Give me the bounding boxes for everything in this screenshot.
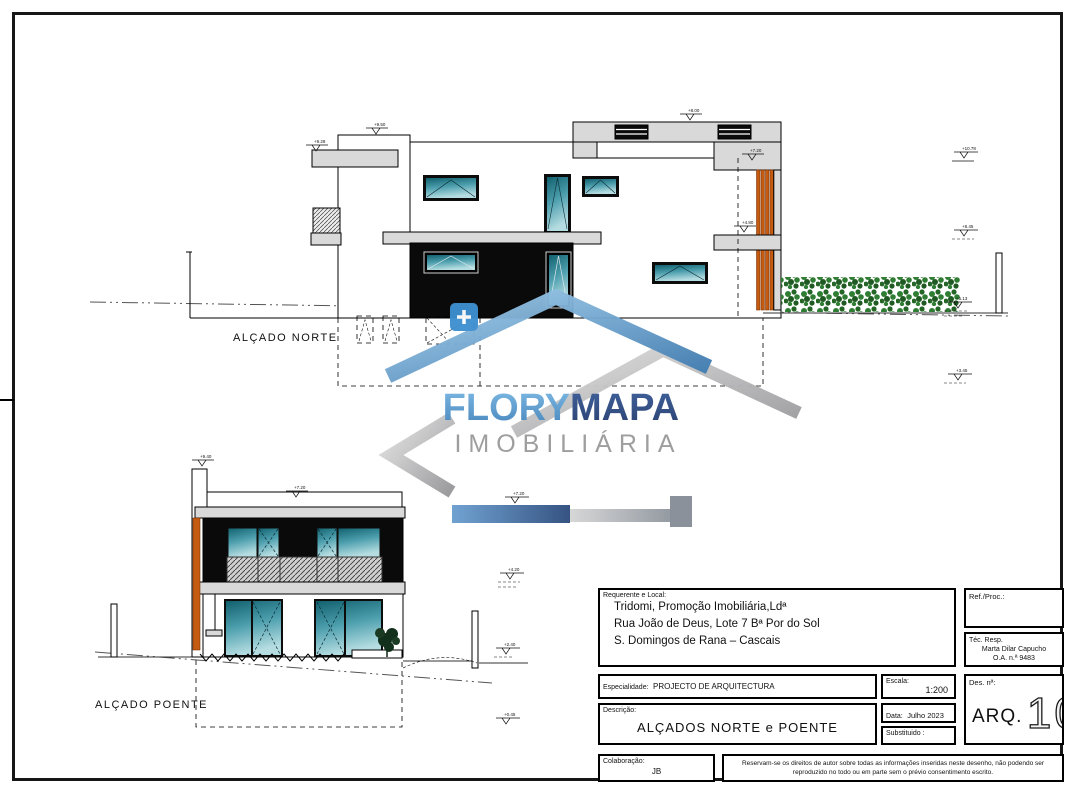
level-label: +4.20 bbox=[508, 567, 520, 572]
level-label: +7.20 bbox=[294, 485, 306, 490]
west-elevation-label: ALÇADO POENTE bbox=[95, 699, 208, 711]
descricao-box: Descrição: ALÇADOS NORTE e POENTE bbox=[598, 703, 877, 745]
level-label: +0.45 bbox=[504, 712, 516, 717]
logo-bar-blue bbox=[452, 505, 570, 523]
logo-plus-badge-icon bbox=[450, 303, 478, 331]
terrain-mound bbox=[403, 658, 477, 668]
right-frame-top bbox=[714, 142, 781, 170]
level-label: +7.20 bbox=[513, 491, 525, 496]
vent-hatch-box bbox=[313, 208, 340, 233]
colaboracao-box: Colaboração: JB bbox=[598, 754, 715, 782]
tec-resp-box: Téc. Resp. Marta Dilar Capucho O.A. n.ª … bbox=[964, 632, 1064, 667]
level-label: +9.28 bbox=[314, 139, 326, 144]
level-label: +8.45 bbox=[962, 224, 974, 229]
sheet-edge-tick bbox=[0, 399, 14, 401]
entry-step bbox=[206, 630, 222, 636]
especialidade-label: Especialidade: bbox=[600, 682, 649, 691]
especialidade-value: PROJECTO DE ARQUITECTURA bbox=[653, 682, 775, 691]
lower-ledge bbox=[311, 233, 341, 245]
drawing-number: 10 bbox=[1027, 689, 1064, 738]
boundary-post-right bbox=[472, 611, 478, 668]
descricao-label: Descrição: bbox=[600, 705, 875, 714]
north-elevation: +9.50 +9.28 +8.00 +7.20 +4.80 +10.78 +8.… bbox=[90, 108, 1008, 386]
level-label: +10.78 bbox=[962, 146, 976, 151]
data-value: Julho 2023 bbox=[907, 711, 944, 720]
requerente-line: Rua João de Deus, Lote 7 Bª Por do Sol bbox=[614, 616, 954, 633]
boundary-post-north bbox=[996, 253, 1002, 313]
colaboracao-value: JB bbox=[600, 767, 713, 776]
level-label: +7.20 bbox=[750, 148, 762, 153]
level-label: +9.40 bbox=[200, 454, 212, 459]
ref-proc-box: Ref./Proc.: bbox=[964, 588, 1064, 628]
level-label: +4.80 bbox=[742, 220, 754, 225]
des-num-label: Des. nª: bbox=[966, 676, 1062, 687]
west-basement-outline bbox=[196, 660, 402, 727]
tec-resp-label: Téc. Resp. bbox=[966, 634, 1062, 645]
right-frame-band bbox=[714, 235, 781, 250]
brand-subtitle: IMOBILIÁRIA bbox=[454, 429, 681, 458]
requerente-line: S. Domingos de Rana – Cascais bbox=[614, 633, 954, 650]
des-num-box: Des. nª: ARQ. 10 bbox=[964, 674, 1064, 745]
data-label: Data: bbox=[883, 711, 903, 720]
tec-resp-number: O.A. n.ª 9483 bbox=[966, 654, 1062, 663]
tec-resp-name: Marta Dilar Capucho bbox=[966, 645, 1062, 654]
escala-label: Escala: bbox=[883, 676, 954, 685]
balcony-railing bbox=[227, 557, 382, 582]
west-mid-slab bbox=[195, 582, 405, 594]
parapet-left-leg bbox=[573, 142, 597, 158]
substituido-box: Substituido : bbox=[881, 726, 956, 745]
requerente-label: Requerente e Local: bbox=[600, 590, 954, 599]
west-wood-strip bbox=[193, 518, 200, 650]
roof-slab bbox=[195, 507, 405, 518]
colaboracao-label: Colaboração: bbox=[600, 756, 713, 765]
especialidade-box: Especialidade: PROJECTO DE ARQUITECTURA bbox=[598, 674, 877, 699]
logo-bar-silver bbox=[570, 509, 672, 522]
escala-value: 1:200 bbox=[883, 685, 954, 695]
west-elevation: +9.40 +7.20 +7.20 +4.20 +2.40 +0.45 ALÇA… bbox=[95, 454, 529, 727]
mid-slab bbox=[383, 232, 601, 244]
boundary-post-left bbox=[111, 604, 117, 657]
title-block: Requerente e Local: Tridomi, Promoção Im… bbox=[598, 588, 1064, 784]
escala-box: Escala: 1:200 bbox=[881, 674, 956, 699]
substituido-label: Substituido : bbox=[883, 728, 954, 737]
level-label: +8.00 bbox=[688, 108, 700, 113]
descricao-value: ALÇADOS NORTE e POENTE bbox=[600, 720, 875, 735]
drawing-code: ARQ. bbox=[972, 706, 1022, 727]
level-label: +5.13 bbox=[956, 296, 968, 301]
level-label: +3.45 bbox=[956, 368, 968, 373]
requerente-line: Tridomi, Promoção Imobiliária,Ldª bbox=[614, 599, 954, 616]
side-platform bbox=[352, 650, 402, 658]
north-elevation-label: ALÇADO NORTE bbox=[233, 332, 338, 344]
copyright-box: Reservam-se os direitos de autor sobre t… bbox=[722, 754, 1064, 782]
logo-bar-end bbox=[670, 496, 692, 527]
brand-secondary: MAPA bbox=[570, 387, 679, 429]
requerente-box: Requerente e Local: Tridomi, Promoção Im… bbox=[598, 588, 956, 667]
level-label: +9.50 bbox=[374, 122, 386, 127]
drawing-sheet: { "sheet": { "background": "#ffffff", "f… bbox=[0, 0, 1078, 793]
hedge bbox=[781, 277, 960, 312]
roof-band bbox=[207, 492, 402, 507]
watermark-logo: FLORY MAPA IMOBILIÁRIA bbox=[388, 297, 799, 527]
canopy-slab bbox=[312, 150, 398, 167]
data-box: Data: Julho 2023 bbox=[881, 703, 956, 723]
copyright-text: Reservam-se os direitos de autor sobre t… bbox=[724, 756, 1062, 781]
ref-proc-label: Ref./Proc.: bbox=[966, 590, 1062, 601]
brand-primary: FLORY bbox=[443, 387, 570, 429]
level-label: +2.40 bbox=[504, 642, 516, 647]
